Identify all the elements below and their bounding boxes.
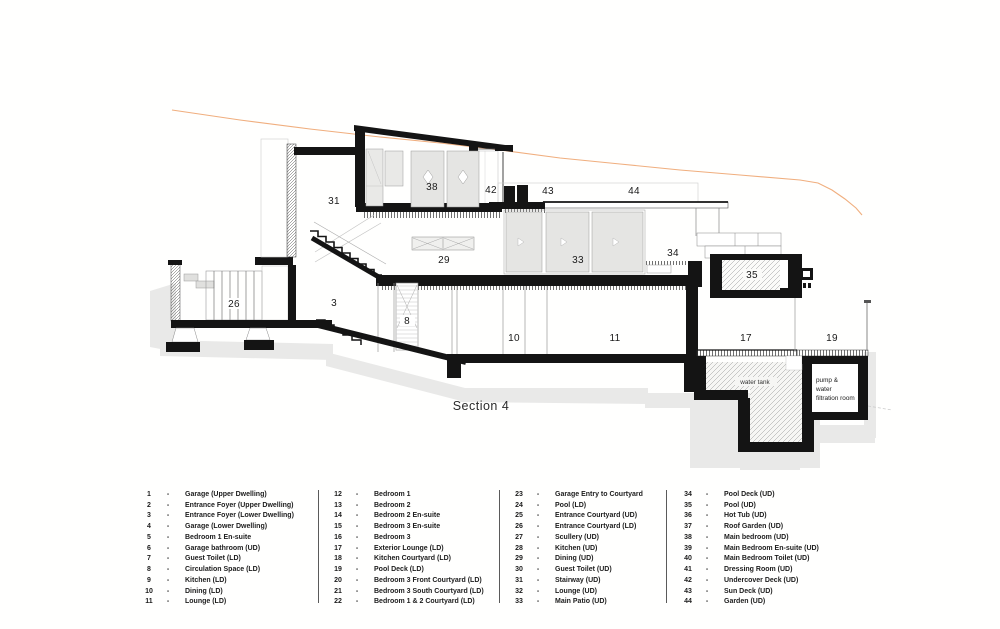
legend-label: Kitchen (UD) <box>546 545 597 552</box>
legend-number: 14 <box>327 512 349 519</box>
legend-number: 34 <box>677 491 699 498</box>
legend-label: Bedroom 2 <box>365 502 411 509</box>
legend-number: 18 <box>327 555 349 562</box>
legend-column-4: 34-Pool Deck (UD)35-Pool (UD)36-Hot Tub … <box>677 489 819 607</box>
legend-dash: - <box>160 577 176 584</box>
legend-row: 25-Entrance Courtyard (UD) <box>508 511 643 522</box>
legend-number: 29 <box>508 555 530 562</box>
legend-row: 1-Garage (Upper Dwelling) <box>138 489 294 500</box>
legend-number: 23 <box>508 491 530 498</box>
legend-number: 25 <box>508 512 530 519</box>
legend-number: 5 <box>138 534 160 541</box>
legend-dash: - <box>699 588 715 595</box>
legend-row: 23-Garage Entry to Courtyard <box>508 489 643 500</box>
room-number-42: 42 <box>485 185 497 196</box>
legend-dash: - <box>699 491 715 498</box>
section-title: Section 4 <box>453 399 510 413</box>
legend-number: 24 <box>508 502 530 509</box>
legend-dash: - <box>160 555 176 562</box>
legend-label: Entrance Foyer (Upper Dwelling) <box>176 502 294 509</box>
wardrobe <box>366 149 383 206</box>
legend-label: Bedroom 3 Front Courtyard (LD) <box>365 577 482 584</box>
legend-number: 44 <box>677 598 699 605</box>
legend-label: Main Bedroom Toilet (UD) <box>715 555 809 562</box>
legend-number: 21 <box>327 588 349 595</box>
legend-dash: - <box>160 588 176 595</box>
legend-label: Pool Deck (LD) <box>365 566 424 573</box>
room-number-10: 10 <box>508 333 520 344</box>
legend-dash: - <box>160 598 176 605</box>
legend-number: 16 <box>327 534 349 541</box>
legend-dash: - <box>699 545 715 552</box>
legend-dash: - <box>699 598 715 605</box>
legend-number: 32 <box>508 588 530 595</box>
legend-number: 28 <box>508 545 530 552</box>
legend-number: 38 <box>677 534 699 541</box>
legend-dash: - <box>160 545 176 552</box>
dining-table <box>412 237 474 250</box>
legend-label: Bedroom 3 En-suite <box>365 523 440 530</box>
legend-row: 29-Dining (UD) <box>508 554 643 565</box>
legend-dash: - <box>160 502 176 509</box>
legend-row: 26-Entrance Courtyard (LD) <box>508 521 643 532</box>
legend-divider <box>666 490 667 603</box>
svg-text:filtration room: filtration room <box>816 395 855 402</box>
legend-dash: - <box>160 523 176 530</box>
legend-row: 17-Exterior Lounge (LD) <box>327 543 484 554</box>
legend-label: Bedroom 1 En-suite <box>176 534 251 541</box>
courtyard-slab <box>171 320 332 328</box>
legend-row: 7-Guest Toilet (LD) <box>138 554 294 565</box>
legend-label: Kitchen Courtyard (LD) <box>365 555 451 562</box>
legend-label: Pool (LD) <box>546 502 586 509</box>
legend-dash: - <box>530 555 546 562</box>
legend-label: Scullery (UD) <box>546 534 599 541</box>
legend-number: 33 <box>508 598 530 605</box>
room-number-43: 43 <box>542 186 554 197</box>
section-drawing: 38 42 43 44 31 29 33 34 35 26 3 8 10 11 … <box>0 0 1000 470</box>
legend-dash: - <box>530 523 546 530</box>
legend-row: 31-Stairway (UD) <box>508 575 643 586</box>
legend-divider <box>318 490 319 603</box>
legend-label: Pool (UD) <box>715 502 756 509</box>
building-structure <box>166 125 892 452</box>
legend-number: 19 <box>327 566 349 573</box>
legend-row: 2-Entrance Foyer (Upper Dwelling) <box>138 500 294 511</box>
legend-dash: - <box>160 491 176 498</box>
legend-number: 17 <box>327 545 349 552</box>
sloped-roof <box>354 125 513 152</box>
legend-label: Garage (Lower Dwelling) <box>176 523 267 530</box>
legend-column-1: 1-Garage (Upper Dwelling)2-Entrance Foye… <box>138 489 294 607</box>
main-stair <box>310 231 382 275</box>
legend-number: 41 <box>677 566 699 573</box>
legend-label: Exterior Lounge (LD) <box>365 545 444 552</box>
legend-label: Undercover Deck (UD) <box>715 577 798 584</box>
legend-number: 6 <box>138 545 160 552</box>
legend-dash: - <box>530 577 546 584</box>
legend-number: 9 <box>138 577 160 584</box>
legend-row: 36-Hot Tub (UD) <box>677 511 819 522</box>
legend-dash: - <box>699 502 715 509</box>
legend-dash: - <box>349 577 365 584</box>
legend-row: 37-Roof Garden (UD) <box>677 521 819 532</box>
legend-number: 10 <box>138 588 160 595</box>
legend-dash: - <box>530 598 546 605</box>
room-number-3: 3 <box>331 298 337 309</box>
insulated-wall <box>287 144 296 257</box>
legend-label: Garage Entry to Courtyard <box>546 491 643 498</box>
legend-dash: - <box>530 502 546 509</box>
legend-number: 2 <box>138 502 160 509</box>
legend-number: 12 <box>327 491 349 498</box>
room-number-34: 34 <box>667 248 679 259</box>
legend-row: 14-Bedroom 2 En-suite <box>327 511 484 522</box>
section-4-drawing-sheet: 38 42 43 44 31 29 33 34 35 26 3 8 10 11 … <box>0 0 1000 629</box>
legend-dash: - <box>349 598 365 605</box>
legend-label: Kitchen (LD) <box>176 577 227 584</box>
legend-dash: - <box>349 512 365 519</box>
legend-label: Entrance Foyer (Lower Dwelling) <box>176 512 294 519</box>
legend-label: Garage (Upper Dwelling) <box>176 491 267 498</box>
legend-column-3: 23-Garage Entry to Courtyard24-Pool (LD)… <box>508 489 643 607</box>
legend-number: 13 <box>327 502 349 509</box>
legend-number: 11 <box>138 598 160 605</box>
legend-row: 42-Undercover Deck (UD) <box>677 575 819 586</box>
legend-label: Pool Deck (UD) <box>715 491 775 498</box>
legend-label: Lounge (UD) <box>546 588 597 595</box>
legend-number: 8 <box>138 566 160 573</box>
legend-row: 39-Main Bedroom En-suite (UD) <box>677 543 819 554</box>
legend-column-2: 12-Bedroom 113-Bedroom 214-Bedroom 2 En-… <box>327 489 484 607</box>
legend-number: 40 <box>677 555 699 562</box>
legend-dash: - <box>530 545 546 552</box>
room-number-19: 19 <box>826 333 838 344</box>
legend-dash: - <box>160 566 176 573</box>
legend-row: 24-Pool (LD) <box>508 500 643 511</box>
legend-row: 35-Pool (UD) <box>677 500 819 511</box>
legend-row: 5-Bedroom 1 En-suite <box>138 532 294 543</box>
legend-number: 15 <box>327 523 349 530</box>
mid-floor-slab <box>376 275 695 286</box>
legend-number: 35 <box>677 502 699 509</box>
legend-number: 1 <box>138 491 160 498</box>
legend-label: Bedroom 1 & 2 Courtyard (LD) <box>365 598 475 605</box>
legend-dash: - <box>699 555 715 562</box>
legend-label: Hot Tub (UD) <box>715 512 767 519</box>
courtyard-slats <box>206 271 262 320</box>
room-number-8: 8 <box>404 316 410 327</box>
legend-dash: - <box>530 534 546 541</box>
legend-number: 42 <box>677 577 699 584</box>
room-number-31: 31 <box>328 196 340 207</box>
legend-label: Main Patio (UD) <box>546 598 607 605</box>
legend-number: 39 <box>677 545 699 552</box>
legend-number: 43 <box>677 588 699 595</box>
legend-row: 21-Bedroom 3 South Courtyard (LD) <box>327 586 484 597</box>
room-number-35: 35 <box>746 270 758 281</box>
room-number-26: 26 <box>228 299 240 310</box>
legend-label: Entrance Courtyard (LD) <box>546 523 636 530</box>
legend-label: Dining (LD) <box>176 588 223 595</box>
legend-row: 4-Garage (Lower Dwelling) <box>138 521 294 532</box>
legend-dash: - <box>160 534 176 541</box>
legend-row: 13-Bedroom 2 <box>327 500 484 511</box>
legend-dash: - <box>699 512 715 519</box>
legend-row: 43-Sun Deck (UD) <box>677 586 819 597</box>
legend-number: 22 <box>327 598 349 605</box>
legend-label: Lounge (LD) <box>176 598 226 605</box>
legend-row: 20-Bedroom 3 Front Courtyard (LD) <box>327 575 484 586</box>
legend-label: Guest Toilet (UD) <box>546 566 612 573</box>
legend-row: 9-Kitchen (LD) <box>138 575 294 586</box>
legend-row: 8-Circulation Space (LD) <box>138 564 294 575</box>
legend-row: 32-Lounge (UD) <box>508 586 643 597</box>
legend-divider <box>499 490 500 603</box>
legend-dash: - <box>530 512 546 519</box>
legend-row: 10-Dining (LD) <box>138 586 294 597</box>
legend-row: 12-Bedroom 1 <box>327 489 484 500</box>
legend-row: 33-Main Patio (UD) <box>508 597 643 608</box>
legend-row: 38-Main bedroom (UD) <box>677 532 819 543</box>
legend-label: Main Bedroom En-suite (UD) <box>715 545 819 552</box>
legend-number: 36 <box>677 512 699 519</box>
legend-row: 41-Dressing Room (UD) <box>677 564 819 575</box>
legend-row: 27-Scullery (UD) <box>508 532 643 543</box>
legend-dash: - <box>349 502 365 509</box>
legend-dash: - <box>699 566 715 573</box>
legend-row: 16-Bedroom 3 <box>327 532 484 543</box>
legend-label: Sun Deck (UD) <box>715 588 773 595</box>
legend-dash: - <box>160 512 176 519</box>
legend-row: 28-Kitchen (UD) <box>508 543 643 554</box>
room-number-33: 33 <box>572 255 584 266</box>
room-number-11: 11 <box>610 333 621 344</box>
legend-row: 22-Bedroom 1 & 2 Courtyard (LD) <box>327 597 484 608</box>
legend-label: Stairway (UD) <box>546 577 601 584</box>
lower-floor-slab <box>458 354 698 363</box>
legend-dash: - <box>699 577 715 584</box>
legend-row: 15-Bedroom 3 En-suite <box>327 521 484 532</box>
legend-label: Guest Toilet (LD) <box>176 555 241 562</box>
legend-label: Circulation Space (LD) <box>176 566 260 573</box>
legend-dash: - <box>349 491 365 498</box>
legend-row: 34-Pool Deck (UD) <box>677 489 819 500</box>
legend-dash: - <box>699 534 715 541</box>
legend-dash: - <box>349 566 365 573</box>
legend-number: 27 <box>508 534 530 541</box>
room-number-38: 38 <box>426 182 438 193</box>
legend-dash: - <box>699 523 715 530</box>
legend-label: Bedroom 3 South Courtyard (LD) <box>365 588 484 595</box>
svg-text:water: water <box>815 386 832 393</box>
legend-dash: - <box>349 545 365 552</box>
room-number-29: 29 <box>438 255 450 266</box>
legend-dash: - <box>530 491 546 498</box>
legend-number: 30 <box>508 566 530 573</box>
legend-label: Garage bathroom (UD) <box>176 545 260 552</box>
room-number-17: 17 <box>740 333 752 344</box>
svg-text:pump &: pump & <box>816 377 839 384</box>
legend-label: Bedroom 2 En-suite <box>365 512 440 519</box>
legend-label: Main bedroom (UD) <box>715 534 789 541</box>
legend-row: 40-Main Bedroom Toilet (UD) <box>677 554 819 565</box>
legend-label: Bedroom 1 <box>365 491 411 498</box>
legend-number: 37 <box>677 523 699 530</box>
room-number-44: 44 <box>628 186 640 197</box>
legend-dash: - <box>530 588 546 595</box>
legend-row: 30-Guest Toilet (UD) <box>508 564 643 575</box>
legend-number: 7 <box>138 555 160 562</box>
legend-dash: - <box>349 588 365 595</box>
legend-row: 11-Lounge (LD) <box>138 597 294 608</box>
legend-number: 4 <box>138 523 160 530</box>
legend-row: 44-Garden (UD) <box>677 597 819 608</box>
legend-dash: - <box>349 534 365 541</box>
legend-label: Dining (UD) <box>546 555 594 562</box>
legend-row: 19-Pool Deck (LD) <box>327 564 484 575</box>
legend-row: 6-Garage bathroom (UD) <box>138 543 294 554</box>
legend-number: 31 <box>508 577 530 584</box>
legend-row: 18-Kitchen Courtyard (LD) <box>327 554 484 565</box>
legend-dash: - <box>349 555 365 562</box>
legend-row: 3-Entrance Foyer (Lower Dwelling) <box>138 511 294 522</box>
legend-number: 26 <box>508 523 530 530</box>
water-tank-label: water tank <box>739 379 770 386</box>
legend-label: Entrance Courtyard (UD) <box>546 512 637 519</box>
legend-label: Garden (UD) <box>715 598 765 605</box>
legend-label: Dressing Room (UD) <box>715 566 792 573</box>
legend-label: Bedroom 3 <box>365 534 411 541</box>
legend-number: 20 <box>327 577 349 584</box>
retaining-wall <box>171 263 180 321</box>
legend-dash: - <box>349 523 365 530</box>
legend-label: Roof Garden (UD) <box>715 523 783 530</box>
legend-number: 3 <box>138 512 160 519</box>
legend-dash: - <box>530 566 546 573</box>
